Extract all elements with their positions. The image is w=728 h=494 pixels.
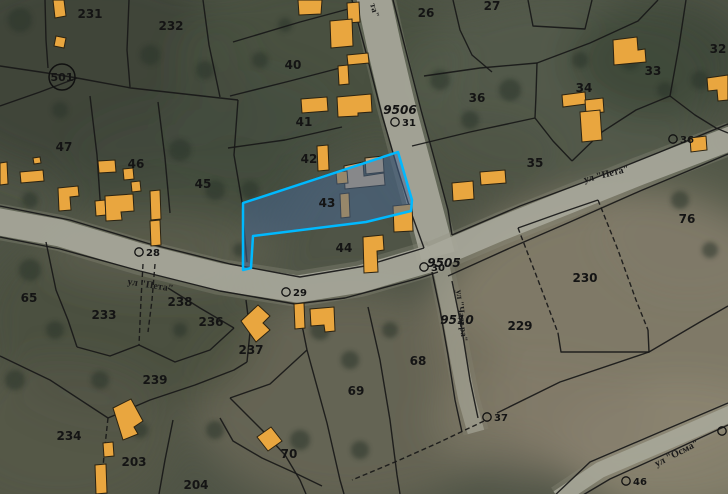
tree-blob[interactable] bbox=[572, 52, 588, 68]
tree-blob[interactable] bbox=[196, 61, 214, 79]
parcel-label-36[interactable]: 36 bbox=[469, 91, 486, 105]
building-footprint[interactable] bbox=[317, 145, 329, 171]
tree-blob[interactable] bbox=[8, 8, 32, 32]
tree-blob[interactable] bbox=[691, 71, 709, 89]
cadastral-map-canvas[interactable]: 2312324746454041424344262736353433327623… bbox=[0, 0, 728, 494]
parcel-label-229[interactable]: 229 bbox=[507, 319, 532, 333]
cadastral-map-svg[interactable]: 2312324746454041424344262736353433327623… bbox=[0, 0, 728, 494]
building-footprint[interactable] bbox=[452, 181, 474, 201]
tree-blob[interactable] bbox=[499, 79, 521, 101]
building-footprint[interactable] bbox=[95, 464, 107, 494]
building-footprint[interactable] bbox=[103, 442, 114, 457]
parcel-label-239[interactable]: 239 bbox=[142, 373, 167, 387]
parcel-label-237[interactable]: 237 bbox=[238, 343, 263, 357]
parcel-label-44[interactable]: 44 bbox=[336, 241, 353, 255]
tree-blob[interactable] bbox=[252, 52, 268, 68]
tree-blob[interactable] bbox=[341, 351, 359, 369]
building-footprint[interactable] bbox=[347, 53, 369, 65]
parcel-label-69[interactable]: 69 bbox=[348, 384, 365, 398]
parcel-label-45[interactable]: 45 bbox=[195, 177, 212, 191]
parcel-label-33[interactable]: 33 bbox=[645, 64, 662, 78]
parcel-label-236[interactable]: 236 bbox=[198, 315, 223, 329]
parcel-label-232[interactable]: 232 bbox=[158, 19, 183, 33]
parcel-label-231[interactable]: 231 bbox=[77, 7, 102, 21]
parcel-label-234[interactable]: 234 bbox=[56, 429, 81, 443]
building-footprint[interactable] bbox=[0, 162, 8, 185]
building-footprint[interactable] bbox=[54, 36, 66, 48]
building-footprint[interactable] bbox=[95, 200, 106, 216]
survey-marker-number[interactable]: 28 bbox=[146, 248, 160, 259]
parcel-label-42[interactable]: 42 bbox=[301, 152, 318, 166]
terrain-patch[interactable] bbox=[160, 70, 340, 190]
parcel-label-70[interactable]: 70 bbox=[281, 447, 298, 461]
building-footprint[interactable] bbox=[301, 97, 328, 113]
building-footprint[interactable] bbox=[330, 19, 353, 48]
parcel-label-27[interactable]: 27 bbox=[484, 0, 501, 13]
tree-blob[interactable] bbox=[46, 321, 64, 339]
survey-marker-number[interactable]: 30 bbox=[431, 263, 445, 274]
building-footprint[interactable] bbox=[131, 181, 141, 192]
tree-blob[interactable] bbox=[91, 371, 109, 389]
survey-marker-number[interactable]: 37 bbox=[494, 413, 508, 424]
parcel-label-35[interactable]: 35 bbox=[527, 156, 544, 170]
tree-blob[interactable] bbox=[351, 441, 369, 459]
parcel-label-32[interactable]: 32 bbox=[710, 42, 727, 56]
road-number-label-9506[interactable]: 9506 bbox=[383, 103, 416, 117]
building-footprint[interactable] bbox=[150, 190, 161, 220]
tree-blob[interactable] bbox=[382, 322, 398, 338]
parcel-label-41[interactable]: 41 bbox=[296, 115, 313, 129]
parcel-label-40[interactable]: 40 bbox=[285, 58, 302, 72]
survey-marker-number[interactable]: 31 bbox=[402, 118, 416, 129]
tree-blob[interactable] bbox=[241, 181, 259, 199]
circled-point-label[interactable]: 501 bbox=[51, 71, 74, 84]
tree-blob[interactable] bbox=[173, 323, 187, 337]
building-footprint[interactable] bbox=[33, 157, 41, 164]
survey-marker-number[interactable]: 29 bbox=[293, 288, 307, 299]
parcel-label-26[interactable]: 26 bbox=[418, 6, 435, 20]
building-footprint[interactable] bbox=[298, 0, 322, 15]
parcel-label-204[interactable]: 204 bbox=[183, 478, 208, 492]
tree-blob[interactable] bbox=[206, 421, 224, 439]
tree-blob[interactable] bbox=[22, 192, 38, 208]
tree-blob[interactable] bbox=[140, 45, 160, 65]
building-footprint[interactable] bbox=[480, 170, 506, 185]
tree-blob[interactable] bbox=[19, 259, 41, 281]
building-footprint[interactable] bbox=[20, 170, 44, 183]
parcel-label-34[interactable]: 34 bbox=[576, 81, 593, 95]
parcel-label-43[interactable]: 43 bbox=[319, 196, 336, 210]
parcel-label-65[interactable]: 65 bbox=[21, 291, 38, 305]
tree-blob[interactable] bbox=[702, 242, 718, 258]
parcel-label-47[interactable]: 47 bbox=[56, 140, 73, 154]
parcel-label-238[interactable]: 238 bbox=[167, 295, 192, 309]
building-footprint[interactable] bbox=[98, 160, 116, 173]
parcel-label-233[interactable]: 233 bbox=[91, 308, 116, 322]
building-footprint[interactable] bbox=[150, 220, 161, 246]
parcel-label-203[interactable]: 203 bbox=[121, 455, 146, 469]
parcel-label-68[interactable]: 68 bbox=[410, 354, 427, 368]
survey-marker-number[interactable]: 46 bbox=[633, 477, 647, 488]
tree-blob[interactable] bbox=[52, 102, 68, 118]
tree-blob[interactable] bbox=[169, 139, 191, 161]
survey-marker-number[interactable]: 36 bbox=[680, 135, 694, 146]
tree-blob[interactable] bbox=[5, 370, 25, 390]
tree-blob[interactable] bbox=[671, 191, 689, 209]
parcel-label-230[interactable]: 230 bbox=[572, 271, 597, 285]
tree-blob[interactable] bbox=[461, 111, 479, 129]
parcel-label-76[interactable]: 76 bbox=[679, 212, 696, 226]
building-footprint[interactable] bbox=[338, 65, 349, 85]
building-footprint[interactable] bbox=[294, 303, 305, 329]
building-footprint[interactable] bbox=[53, 0, 66, 18]
parcel-label-46[interactable]: 46 bbox=[128, 157, 145, 171]
building-footprint[interactable] bbox=[580, 110, 602, 142]
